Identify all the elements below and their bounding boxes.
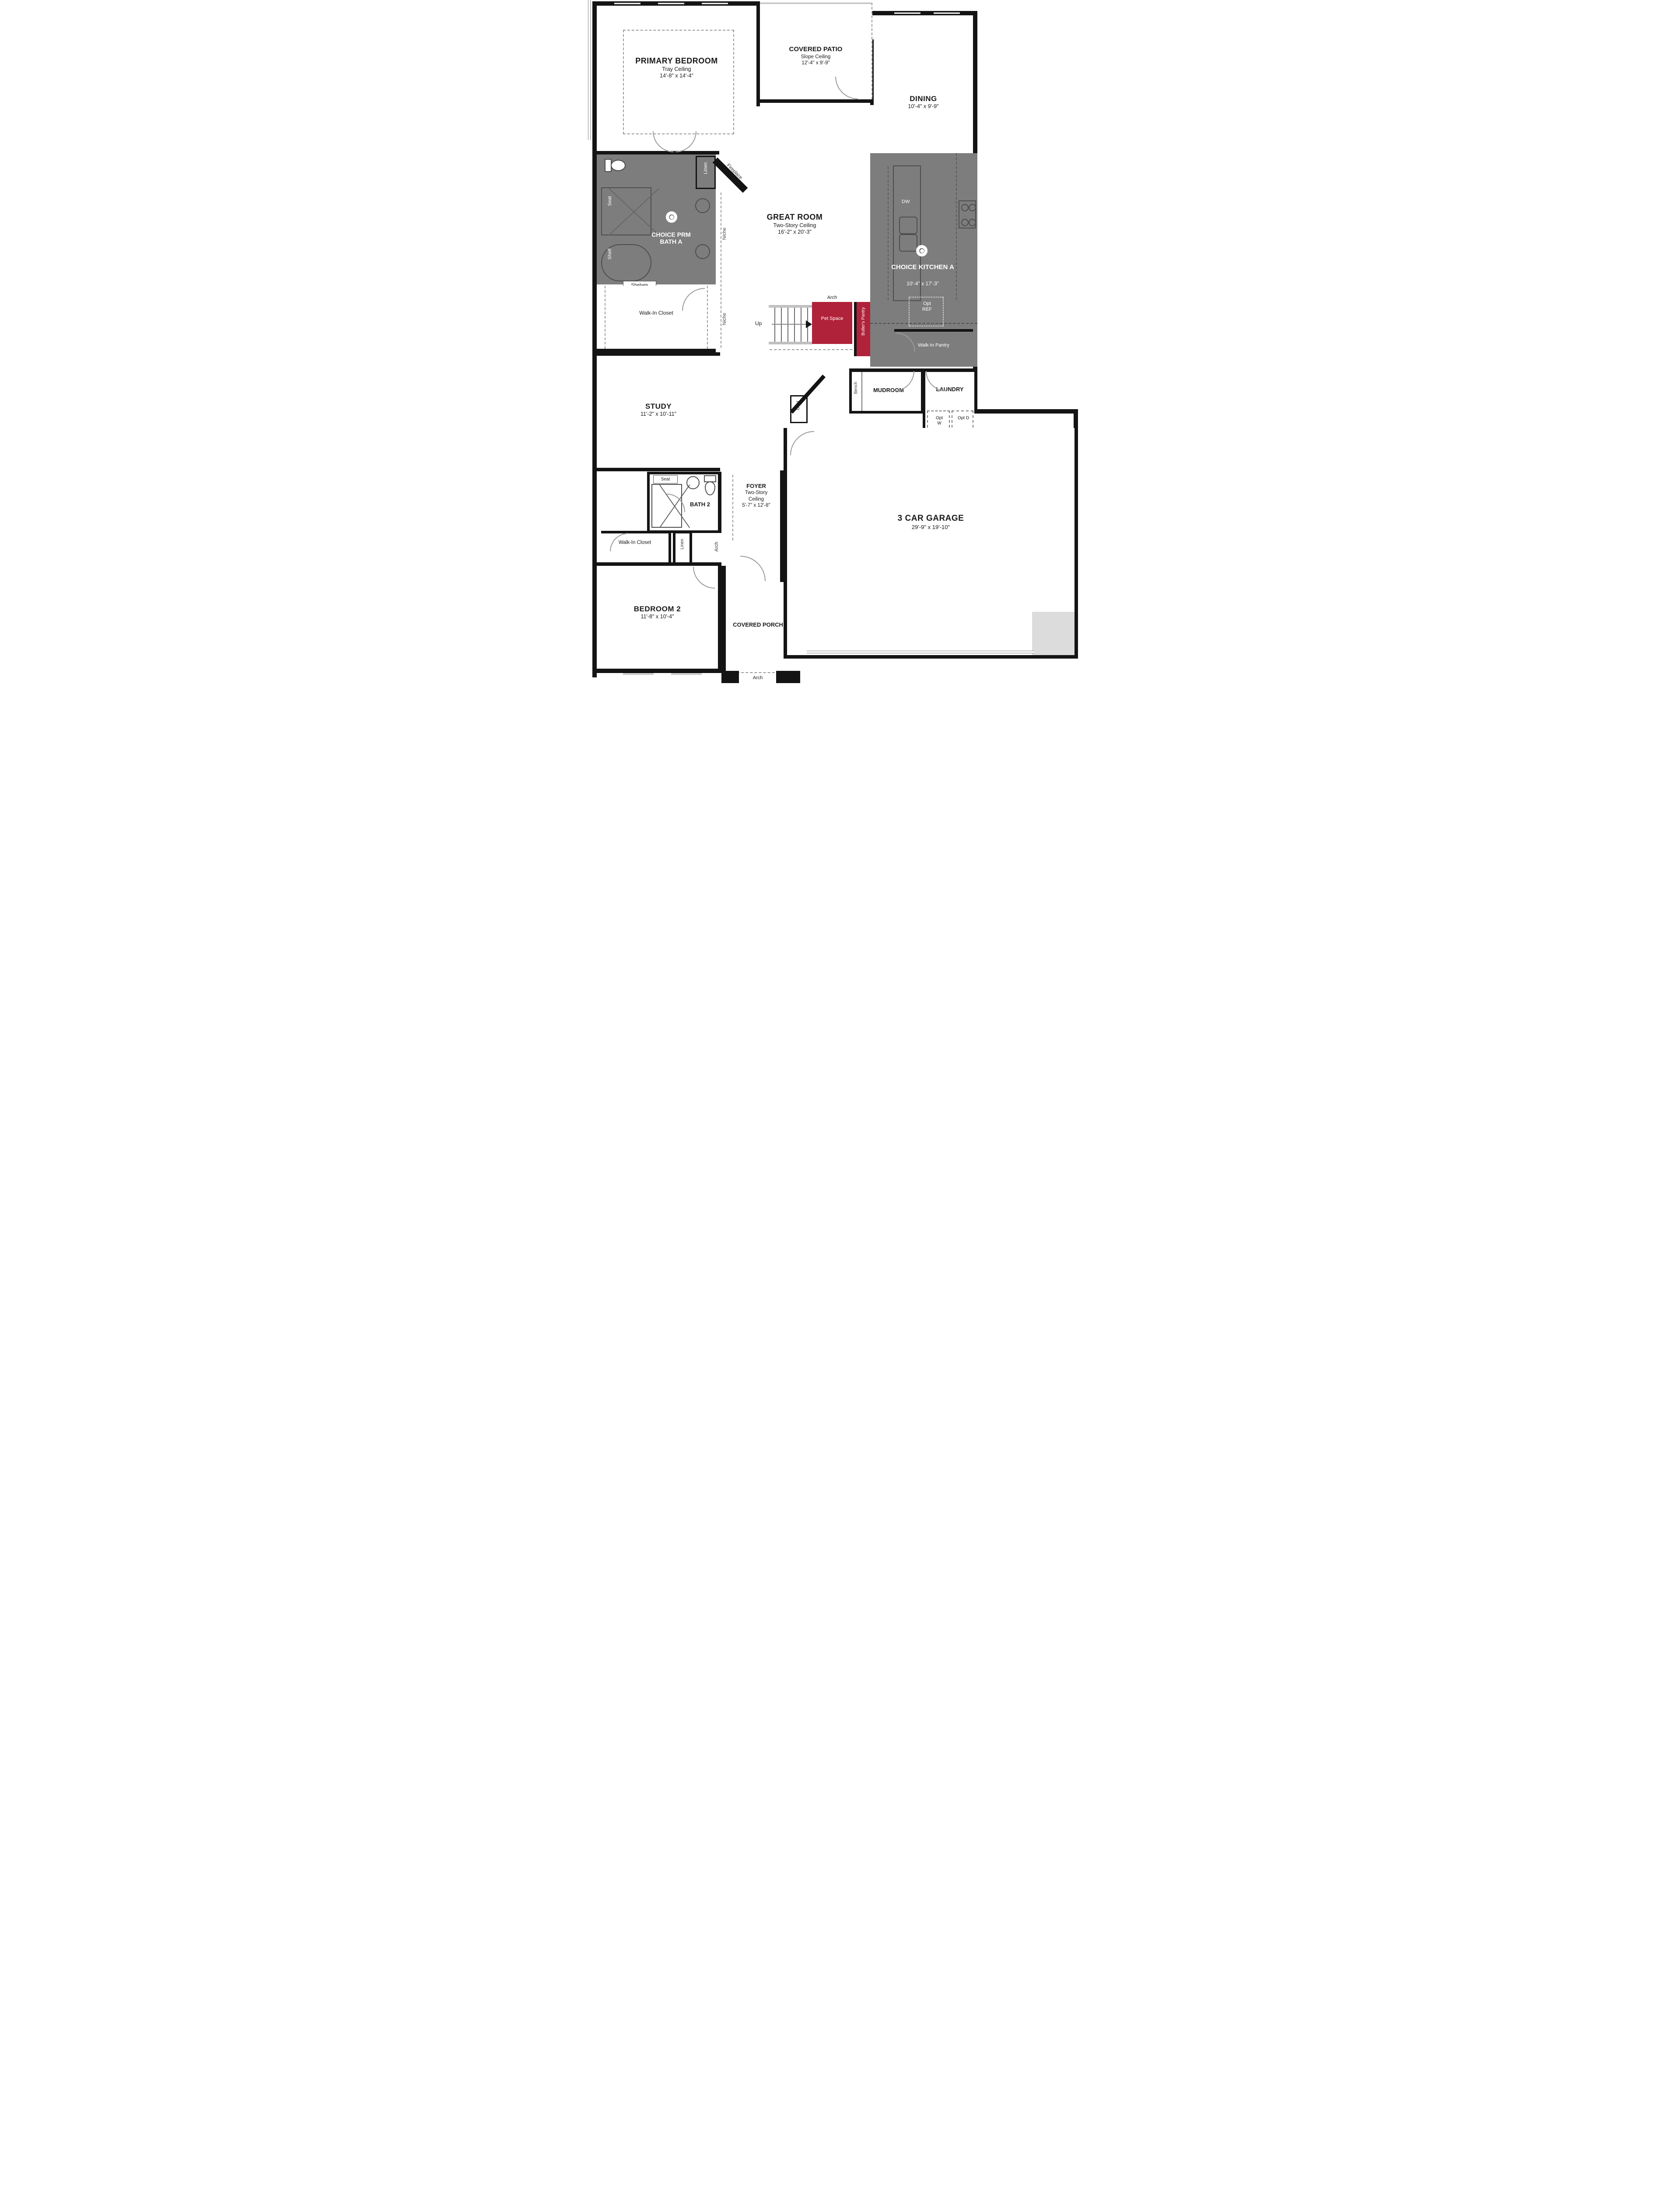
cooktop-icon [959,200,976,228]
wall [597,562,721,566]
room-name: PRIMARY BEDROOM [597,56,756,66]
linen-label: Linen [680,539,685,549]
room-dims: 29'-9" x 19'-10" [787,524,1074,531]
wall-diagonal [790,375,826,414]
room-bath2: Seat BATH 2 [647,472,721,533]
room-name: DINING [874,94,973,103]
window [671,673,702,675]
kitchen-label: CHOICE KITCHEN A [885,263,960,271]
pet-space-label: Pet Space [820,316,844,322]
room-ceiling: Tray Ceiling [597,66,756,73]
niche-label: Niche [722,313,728,325]
room-dims: 16'-2" x 20'-3" [719,229,870,236]
dishwasher-label: DW [902,199,910,205]
window [588,88,591,114]
room-primary-bedroom: PRIMARY BEDROOM Tray Ceiling 14'-8" x 14… [597,6,756,151]
wall [721,566,726,675]
window [588,57,591,88]
window [658,3,684,4]
closet-rod [605,286,605,349]
linen-label: Linen [703,162,709,174]
room-foyer: FOYER Two-Story Ceiling 5'-7" x 12'-8" [732,470,784,582]
niche-label: Niche [722,228,728,240]
room-ceiling: Slope Ceiling [760,54,871,60]
wall [592,151,719,154]
kitchen-sink-icon [899,217,917,234]
butlers-pantry-label: Butler's Pantry [861,307,866,336]
room-dims: 12'-4" x 9'-9" [760,60,871,66]
room-dims: 14'-8" x 14'-4" [597,73,756,80]
kitchen-dash [870,323,977,324]
room-pet-space: Pet Space [812,302,852,344]
kitchen-dims: 10'-4" x 17'-3" [885,281,960,287]
room-name: STUDY [597,402,720,411]
room-ceiling: Two-Story Ceiling [719,222,870,229]
closet-rod [707,286,708,349]
garage-apron [1032,612,1074,655]
sink-icon [686,476,700,489]
arch-label: Arch [823,295,841,301]
opt-ref-box: Opt REF [909,297,944,326]
window [623,673,654,675]
room-study: STUDY 11'-2" x 10'-11" [597,352,720,471]
window [702,3,728,4]
kitchen-sink-icon [899,234,917,252]
floor-plan: PRIMARY BEDROOM Tray Ceiling 14'-8" x 14… [588,0,1092,689]
arch-label: Arch [740,675,775,681]
counter-dash [956,153,957,300]
room-name: FOYER [732,483,780,490]
room-name: MUDROOM [858,387,919,394]
opt-ref-label: Opt REF [918,301,936,312]
window [614,3,640,4]
wall [721,671,739,683]
bath2-label: BATH 2 [681,501,719,508]
room-name: BEDROOM 2 [597,604,718,614]
sink-icon [695,244,710,259]
seat-label: Seat [607,196,613,206]
niche-line [721,193,721,348]
room-covered-porch: COVERED PORCH [732,607,784,673]
window [588,31,591,57]
room-name: COVERED PATIO [760,46,871,54]
room-ceiling: Two-Story Ceiling [732,490,780,502]
room-dims: 10'-4" x 9'-9" [874,103,973,110]
sink-icon [695,198,710,213]
wall [784,428,787,659]
room-dims: 5'-7" x 12'-8" [732,502,780,508]
closet-linen-upper: Linen [696,156,716,189]
window [588,0,591,31]
stair-arrow-icon [806,320,812,328]
up-label: Up [755,321,762,327]
choice-option-icon [666,211,677,223]
shelf-label: Shelf [607,249,613,259]
closet-linen-2: Linen [673,531,692,566]
room-name: GREAT ROOM [719,212,870,222]
seat-box: Seat [653,475,678,484]
room-dims: 11'-2" x 10'-11" [597,411,720,418]
island-dash [888,166,889,300]
opt-w-label: Opt W [933,416,945,426]
room-dims: 11'-8" x 10'-4" [597,614,718,621]
walk-in-pantry-label: Walk-In Pantry [914,343,953,348]
shower-icon [601,187,651,235]
room-dining: DINING 10'-4" x 9'-9" [874,15,973,153]
wall [973,409,1078,414]
choice-option-icon [916,245,927,256]
window [934,12,960,14]
window [588,114,591,140]
wall [756,1,760,106]
wall [759,99,874,103]
toilet-icon [703,475,716,494]
prm-bath-label: CHOICE PRM BATH A [647,231,695,245]
window [894,12,920,14]
door-arc [740,556,766,581]
wall [776,671,800,683]
room-name: Walk-In Closet [597,310,716,316]
wall [592,1,597,677]
garage-door-line [807,651,1034,653]
room-name: COVERED PORCH [732,621,784,628]
stair-direction-line [772,324,807,325]
room-name: LAUNDRY [925,386,974,393]
opt-d-label: Opt D [957,416,969,421]
wall [872,11,977,15]
arch-label: Arch [714,542,720,552]
room-name: 3 CAR GARAGE [787,513,1074,524]
room-garage: 3 CAR GARAGE 29'-9" x 19'-10" [787,428,1074,655]
toilet-icon [605,158,625,171]
tray-ceiling-outline [623,30,734,134]
